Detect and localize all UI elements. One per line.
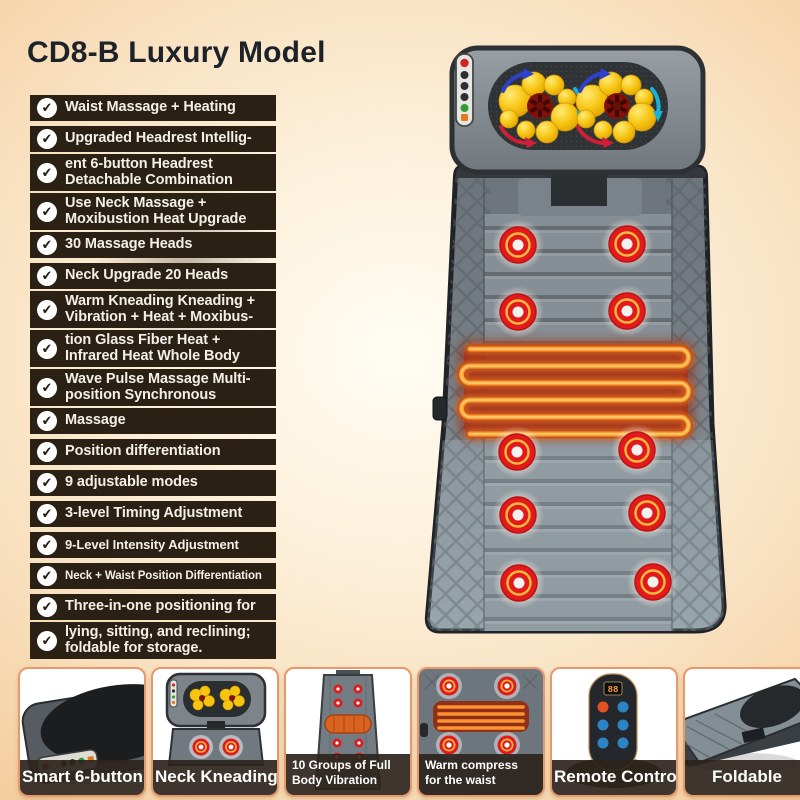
feature-line: foldable for storage.	[65, 641, 251, 657]
check-icon: ✔	[36, 338, 57, 359]
check-icon: ✔	[36, 377, 57, 398]
check-icon: ✔	[36, 97, 57, 118]
feature-line: lying, sitting, and reclining;	[65, 625, 251, 641]
feature-line: Massage	[65, 413, 126, 429]
check-icon: ✔	[36, 162, 57, 183]
feature-text: Massage	[65, 413, 126, 429]
feature-item: ✔Position differentiation	[30, 439, 276, 465]
feature-text: 9 adjustable modes	[65, 475, 198, 491]
thumbnail-label: Warm compress for the waist	[419, 754, 543, 795]
feature-line: tion Glass Fiber Heat +	[65, 333, 240, 349]
check-icon: ✔	[36, 201, 57, 222]
feature-item: ✔Waist Massage + Heating	[30, 95, 276, 121]
thumbnail-card-neck-kneading: Neck Kneading	[151, 667, 279, 797]
check-icon: ✔	[36, 265, 57, 286]
feature-row: ✔Warm Kneading Kneading +Vibration + Hea…	[30, 291, 276, 328]
feature-line: position Synchronous	[65, 388, 251, 404]
feature-text: Upgraded Headrest Intellig-	[65, 131, 252, 147]
feature-row: ✔9 adjustable modes	[30, 470, 276, 496]
feature-row: ✔3-level Timing Adjustment	[30, 501, 276, 527]
feature-list: ✔Waist Massage + Heating✔Upgraded Headre…	[30, 95, 276, 664]
feature-text: 3-level Timing Adjustment	[65, 506, 242, 522]
feature-line: 30 Massage Heads	[65, 237, 192, 253]
feature-item: ✔Neck + Waist Position Differentiation	[30, 563, 276, 589]
feature-row: ✔Three-in-one positioning for	[30, 594, 276, 620]
feature-text: Wave Pulse Massage Multi-position Synchr…	[65, 372, 251, 403]
feature-line: ent 6-button Headrest	[65, 157, 233, 173]
feature-item: ✔Three-in-one positioning for✔lying, sit…	[30, 594, 276, 659]
feature-item: ✔Neck Upgrade 20 Heads✔Warm Kneading Kne…	[30, 263, 276, 434]
headrest	[452, 48, 703, 172]
feature-row: ✔Upgraded Headrest Intellig-	[30, 126, 276, 152]
feature-text: Waist Massage + Heating	[65, 100, 236, 116]
feature-row: ✔tion Glass Fiber Heat +Infrared Heat Wh…	[30, 330, 276, 367]
check-icon: ✔	[36, 565, 57, 586]
feature-text: Three-in-one positioning for	[65, 599, 256, 615]
remote-display-digits: 88	[608, 685, 619, 695]
feature-row: ✔30 Massage Heads	[30, 232, 276, 258]
power-knob	[433, 397, 447, 420]
check-icon: ✔	[36, 441, 57, 462]
thumbnail-card-foldable: Foldable	[683, 667, 800, 797]
check-icon: ✔	[36, 503, 57, 524]
feature-line: Detachable Combination	[65, 173, 233, 189]
feature-row: ✔Neck + Waist Position Differentiation	[30, 563, 276, 589]
feature-line: Waist Massage + Heating	[65, 100, 236, 116]
feature-line: Moxibustion Heat Upgrade	[65, 212, 246, 228]
page-title: CD8-B Luxury Model	[27, 36, 326, 70]
feature-text: Neck + Waist Position Differentiation	[65, 570, 262, 583]
feature-line: Neck Upgrade 20 Heads	[65, 268, 228, 284]
product-ad-canvas: CD8-B Luxury Model ✔Waist Massage + Heat…	[0, 0, 800, 800]
feature-line: 9 adjustable modes	[65, 475, 198, 491]
feature-text: ent 6-button HeadrestDetachable Combinat…	[65, 157, 233, 188]
feature-text: tion Glass Fiber Heat +Infrared Heat Who…	[65, 333, 240, 364]
feature-line: Vibration + Heat + Moxibus-	[65, 310, 255, 326]
thumbnail-card-smart-6-button: Smart 6-button	[18, 667, 146, 797]
feature-line: Wave Pulse Massage Multi-	[65, 372, 251, 388]
thumbnail-label: Smart 6-button	[20, 760, 144, 795]
feature-row: ✔Neck Upgrade 20 Heads	[30, 263, 276, 289]
feature-text: Warm Kneading Kneading +Vibration + Heat…	[65, 294, 255, 325]
feature-row: ✔9-Level Intensity Adjustment	[30, 532, 276, 558]
feature-text: Use Neck Massage +Moxibustion Heat Upgra…	[65, 196, 246, 227]
feature-text: lying, sitting, and reclining;foldable f…	[65, 625, 251, 656]
check-icon: ✔	[36, 472, 57, 493]
feature-line: 3-level Timing Adjustment	[65, 506, 242, 522]
feature-line: Upgraded Headrest Intellig-	[65, 131, 252, 147]
check-icon: ✔	[36, 630, 57, 651]
thumbnail-row: Smart 6-button	[18, 667, 800, 797]
feature-text: Neck Upgrade 20 Heads	[65, 268, 228, 284]
feature-text: 30 Massage Heads	[65, 237, 192, 253]
feature-item: ✔9-Level Intensity Adjustment	[30, 532, 276, 558]
feature-row: ✔Wave Pulse Massage Multi-position Synch…	[30, 369, 276, 406]
check-icon: ✔	[36, 534, 57, 555]
thumbnail-card-vibration: 10 Groups of Full Body Vibration	[284, 667, 412, 797]
feature-row: ✔Massage	[30, 408, 276, 434]
check-icon: ✔	[36, 410, 57, 431]
thumbnail-card-remote-control: 88 Remote Control	[550, 667, 678, 797]
thumbnail-label: Foldable	[685, 760, 800, 795]
feature-row: ✔Use Neck Massage +Moxibustion Heat Upgr…	[30, 193, 276, 230]
feature-row: ✔lying, sitting, and reclining;foldable …	[30, 622, 276, 659]
headrest-control-panel	[456, 54, 473, 126]
feature-row: ✔ent 6-button HeadrestDetachable Combina…	[30, 154, 276, 191]
feature-line: Neck + Waist Position Differentiation	[65, 570, 262, 583]
feature-line: Infrared Heat Whole Body	[65, 349, 240, 365]
check-icon: ✔	[36, 128, 57, 149]
feature-text: 9-Level Intensity Adjustment	[65, 538, 239, 553]
thumbnail-label: Remote Control	[552, 760, 676, 795]
feature-item: ✔9 adjustable modes	[30, 470, 276, 496]
feature-line: Position differentiation	[65, 444, 221, 460]
heat-coil	[458, 340, 694, 440]
check-icon: ✔	[36, 234, 57, 255]
feature-text: Position differentiation	[65, 444, 221, 460]
thumbnail-label: Neck Kneading	[153, 760, 277, 795]
feature-row: ✔Waist Massage + Heating	[30, 95, 276, 121]
feature-item: ✔3-level Timing Adjustment	[30, 501, 276, 527]
feature-line: Use Neck Massage +	[65, 196, 246, 212]
feature-item: ✔Upgraded Headrest Intellig-✔ent 6-butto…	[30, 126, 276, 258]
product-image	[400, 40, 740, 655]
feature-line: Three-in-one positioning for	[65, 599, 256, 615]
thumbnail-card-warm-compress: Warm compress for the waist	[417, 667, 545, 797]
feature-line: Warm Kneading Kneading +	[65, 294, 255, 310]
feature-row: ✔Position differentiation	[30, 439, 276, 465]
thumbnail-label: 10 Groups of Full Body Vibration	[286, 754, 410, 795]
check-icon: ✔	[36, 299, 57, 320]
check-icon: ✔	[36, 596, 57, 617]
feature-line: 9-Level Intensity Adjustment	[65, 538, 239, 553]
